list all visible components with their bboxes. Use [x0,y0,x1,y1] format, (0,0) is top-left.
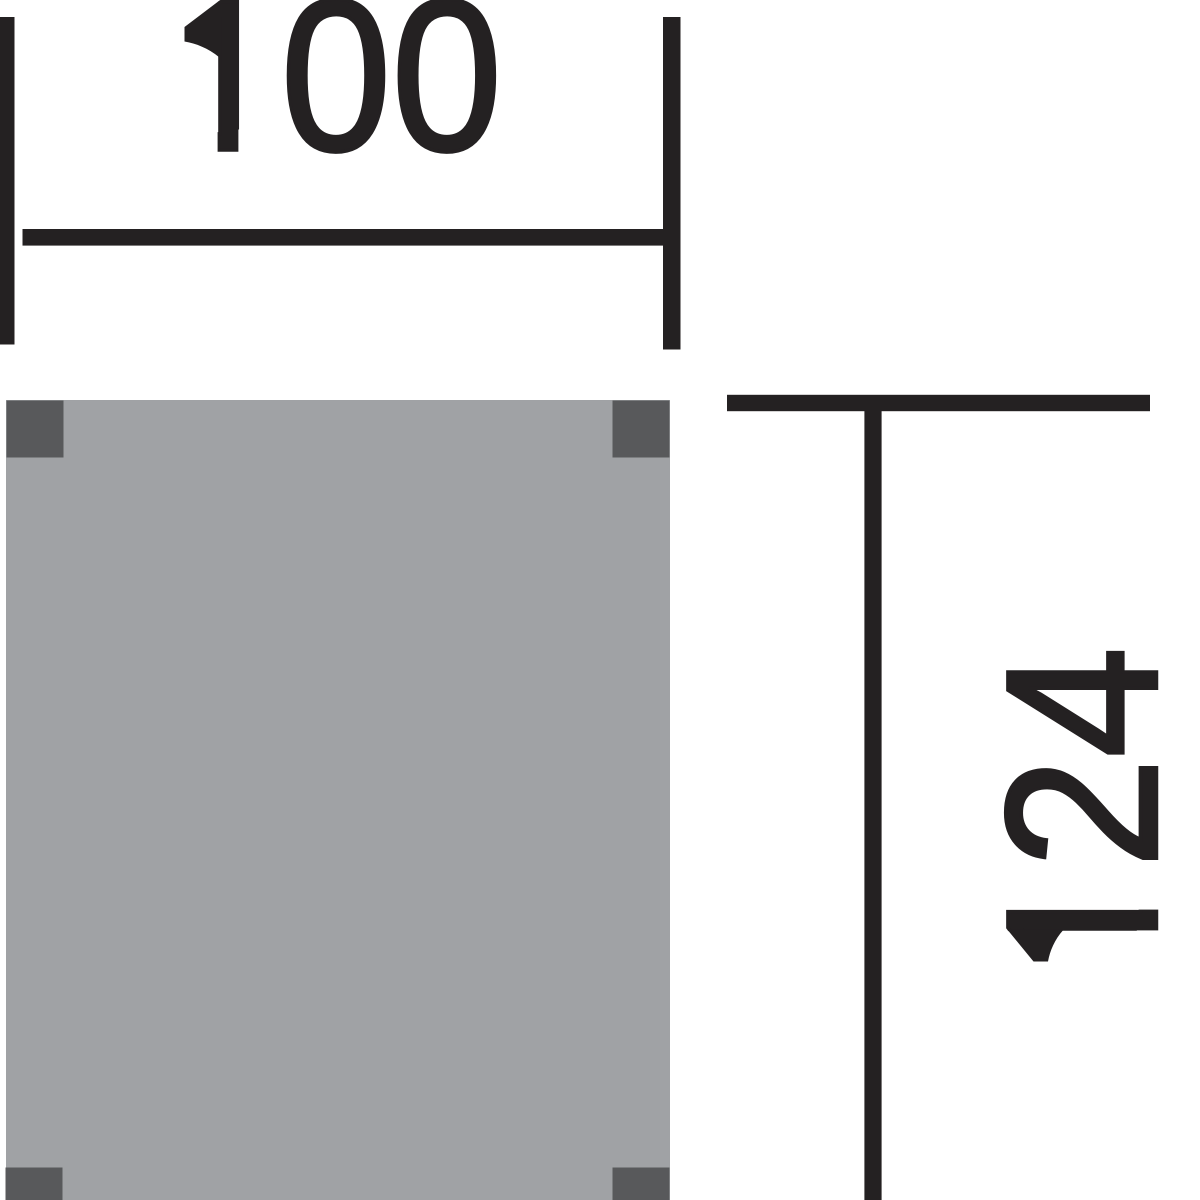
svg-text:124: 124 [961,647,1200,980]
svg-text:100: 100 [170,0,503,196]
